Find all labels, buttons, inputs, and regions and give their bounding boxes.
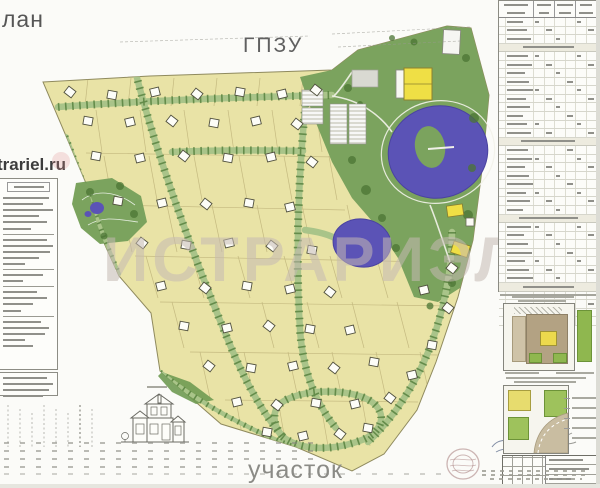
house-marker — [298, 431, 309, 441]
diagram-b-road — [504, 386, 568, 453]
house-marker — [277, 89, 288, 99]
house-marker — [83, 116, 93, 125]
spec-row — [499, 206, 597, 215]
house-marker — [232, 397, 243, 407]
diagram-setback-scheme — [503, 303, 575, 371]
legend-line — [7, 182, 50, 192]
watermark-logo-smudge — [52, 152, 70, 170]
house-marker — [305, 324, 315, 333]
parking-row — [349, 104, 366, 144]
leader-line — [564, 428, 570, 429]
doc-type-label: ГПЗУ — [243, 34, 303, 58]
house-marker — [288, 361, 299, 371]
diagram-a-subtitle — [518, 300, 566, 302]
house-marker — [311, 398, 321, 407]
spec-row — [499, 180, 597, 189]
profile-rulers — [8, 405, 92, 447]
diagram-a-green1 — [529, 353, 542, 363]
spec-row — [499, 146, 597, 155]
diagram-b-label — [572, 407, 596, 409]
house-marker — [157, 198, 168, 208]
legend-text-lines — [3, 182, 54, 349]
spec-band-row — [499, 215, 597, 224]
house-marker — [150, 87, 161, 97]
house-marker — [113, 196, 123, 205]
spec-row — [499, 27, 597, 36]
house-marker — [209, 118, 219, 127]
house-marker — [246, 363, 256, 372]
house-marker — [244, 198, 254, 207]
spec-row — [499, 189, 597, 198]
house-marker — [135, 153, 146, 163]
spec-row — [499, 129, 597, 138]
house-marker — [262, 427, 272, 436]
diagram-b-label — [572, 437, 596, 439]
hatch-strip — [514, 307, 562, 314]
legend-lower-lines — [3, 375, 54, 399]
diagram-b-subtitle — [514, 381, 576, 383]
parking-row — [330, 104, 347, 144]
legend-line — [3, 261, 54, 267]
diagram-b-label — [572, 427, 596, 429]
diagram-a-footnote2 — [556, 372, 594, 374]
spec-row — [499, 103, 597, 112]
building-yellow-small — [446, 204, 463, 217]
spec-row — [499, 155, 597, 164]
leader-line — [564, 418, 570, 419]
diagram-a-green-strip — [577, 310, 592, 362]
house-marker — [266, 152, 277, 162]
spec-row — [499, 266, 597, 275]
legend-line — [3, 278, 54, 284]
spec-band-row — [499, 283, 597, 292]
page-edge-bottom — [0, 484, 600, 488]
house-marker — [235, 87, 245, 96]
townhouse-row — [302, 108, 323, 124]
spec-row — [499, 52, 597, 61]
spec-table — [498, 0, 598, 292]
house-marker — [223, 153, 233, 162]
measure-row — [4, 442, 320, 444]
house-marker — [407, 370, 418, 380]
spec-row — [499, 112, 597, 121]
spec-row — [499, 95, 597, 104]
stamp-caption — [482, 470, 590, 472]
diagram-b-title — [506, 377, 586, 379]
spec-row — [499, 86, 597, 95]
diagram-b-label — [572, 417, 596, 419]
page-title-fragment: лан — [2, 6, 44, 33]
legend-panel-lower — [0, 372, 58, 396]
page-edge-right — [596, 0, 600, 488]
house-marker — [285, 202, 296, 212]
house-marker — [369, 357, 379, 366]
house-marker — [222, 323, 233, 333]
spec-row — [499, 78, 597, 87]
brand-watermark: ИСТРАРИЭЛ — [103, 224, 523, 296]
legend-line — [3, 225, 54, 231]
spec-row — [499, 18, 597, 27]
measure-row — [4, 466, 234, 468]
spec-row — [499, 172, 597, 181]
house-marker — [125, 117, 136, 127]
bottom-caption: участок — [248, 456, 343, 485]
stamp-caption — [490, 478, 582, 480]
house-marker — [345, 325, 356, 335]
pond-small — [85, 211, 92, 217]
spec-band-row — [499, 138, 597, 147]
spec-row — [499, 121, 597, 130]
legend-line — [3, 393, 54, 399]
spec-row — [499, 223, 597, 232]
house-marker — [179, 321, 189, 330]
stamp-caption — [482, 474, 590, 476]
legend-line — [3, 308, 54, 314]
spec-row — [499, 257, 597, 266]
scanned-plan-page: лан ГПЗУ участок trariel.ru ИСТРАРИЭЛ — [0, 0, 600, 488]
measure-row — [4, 450, 320, 452]
legend-panel — [0, 178, 58, 370]
diagram-a-house — [540, 331, 557, 346]
legend-line — [3, 316, 54, 317]
house-marker — [251, 116, 262, 126]
spec-row — [499, 249, 597, 258]
spec-row — [499, 61, 597, 70]
diagram-a-footnote — [505, 372, 539, 374]
spec-band-row — [499, 44, 597, 53]
house-marker — [91, 151, 101, 160]
spec-row — [499, 240, 597, 249]
spec-row — [499, 35, 597, 44]
spec-table-header — [499, 1, 597, 18]
diagram-b-label — [572, 397, 596, 399]
leader-line — [564, 398, 570, 399]
diagram-corner-lot-scheme — [503, 385, 569, 454]
diagram-a-title — [512, 296, 574, 298]
stamp-seal — [447, 449, 479, 479]
plaza — [352, 70, 378, 87]
spec-row — [499, 69, 597, 78]
measure-row — [4, 473, 444, 475]
spec-row — [499, 197, 597, 206]
house-marker — [363, 423, 373, 432]
house-marker — [107, 90, 117, 99]
house-marker — [427, 340, 437, 349]
spec-table-rows — [499, 18, 597, 326]
pond — [90, 202, 104, 214]
leader-line — [564, 408, 570, 409]
spec-row — [499, 232, 597, 241]
diagram-a-side-lot — [512, 316, 526, 362]
spec-row — [499, 163, 597, 172]
diagram-a-green2 — [553, 353, 567, 363]
legend-line — [3, 286, 54, 287]
legend-line — [3, 269, 54, 270]
spec-row — [499, 274, 597, 283]
house-marker — [350, 399, 361, 409]
legend-line — [3, 343, 54, 349]
legend-line — [3, 234, 54, 235]
